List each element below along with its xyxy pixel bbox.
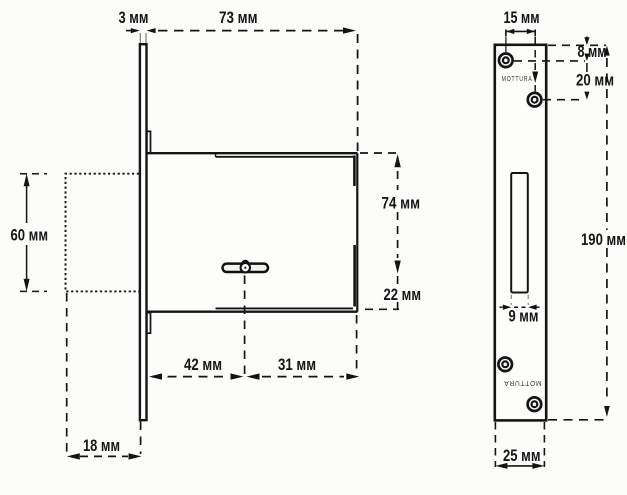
svg-text:MOTTURA: MOTTURA [502,74,533,83]
svg-text:9 мм: 9 мм [509,307,539,326]
svg-text:20 мм: 20 мм [576,71,614,90]
svg-text:190 мм: 190 мм [581,230,626,249]
svg-text:22 мм: 22 мм [384,285,422,304]
svg-text:8 мм: 8 мм [578,42,607,61]
svg-text:73 мм: 73 мм [219,8,258,27]
svg-text:74 мм: 74 мм [382,194,421,213]
svg-text:60 мм: 60 мм [11,226,49,245]
svg-text:15 мм: 15 мм [504,8,540,27]
svg-text:31 мм: 31 мм [278,355,316,374]
svg-text:42 мм: 42 мм [184,355,222,374]
svg-text:3 мм: 3 мм [119,8,149,27]
svg-text:MOTTURA: MOTTURA [503,379,541,388]
svg-text:18 мм: 18 мм [83,436,120,455]
svg-text:25 мм: 25 мм [503,446,541,465]
